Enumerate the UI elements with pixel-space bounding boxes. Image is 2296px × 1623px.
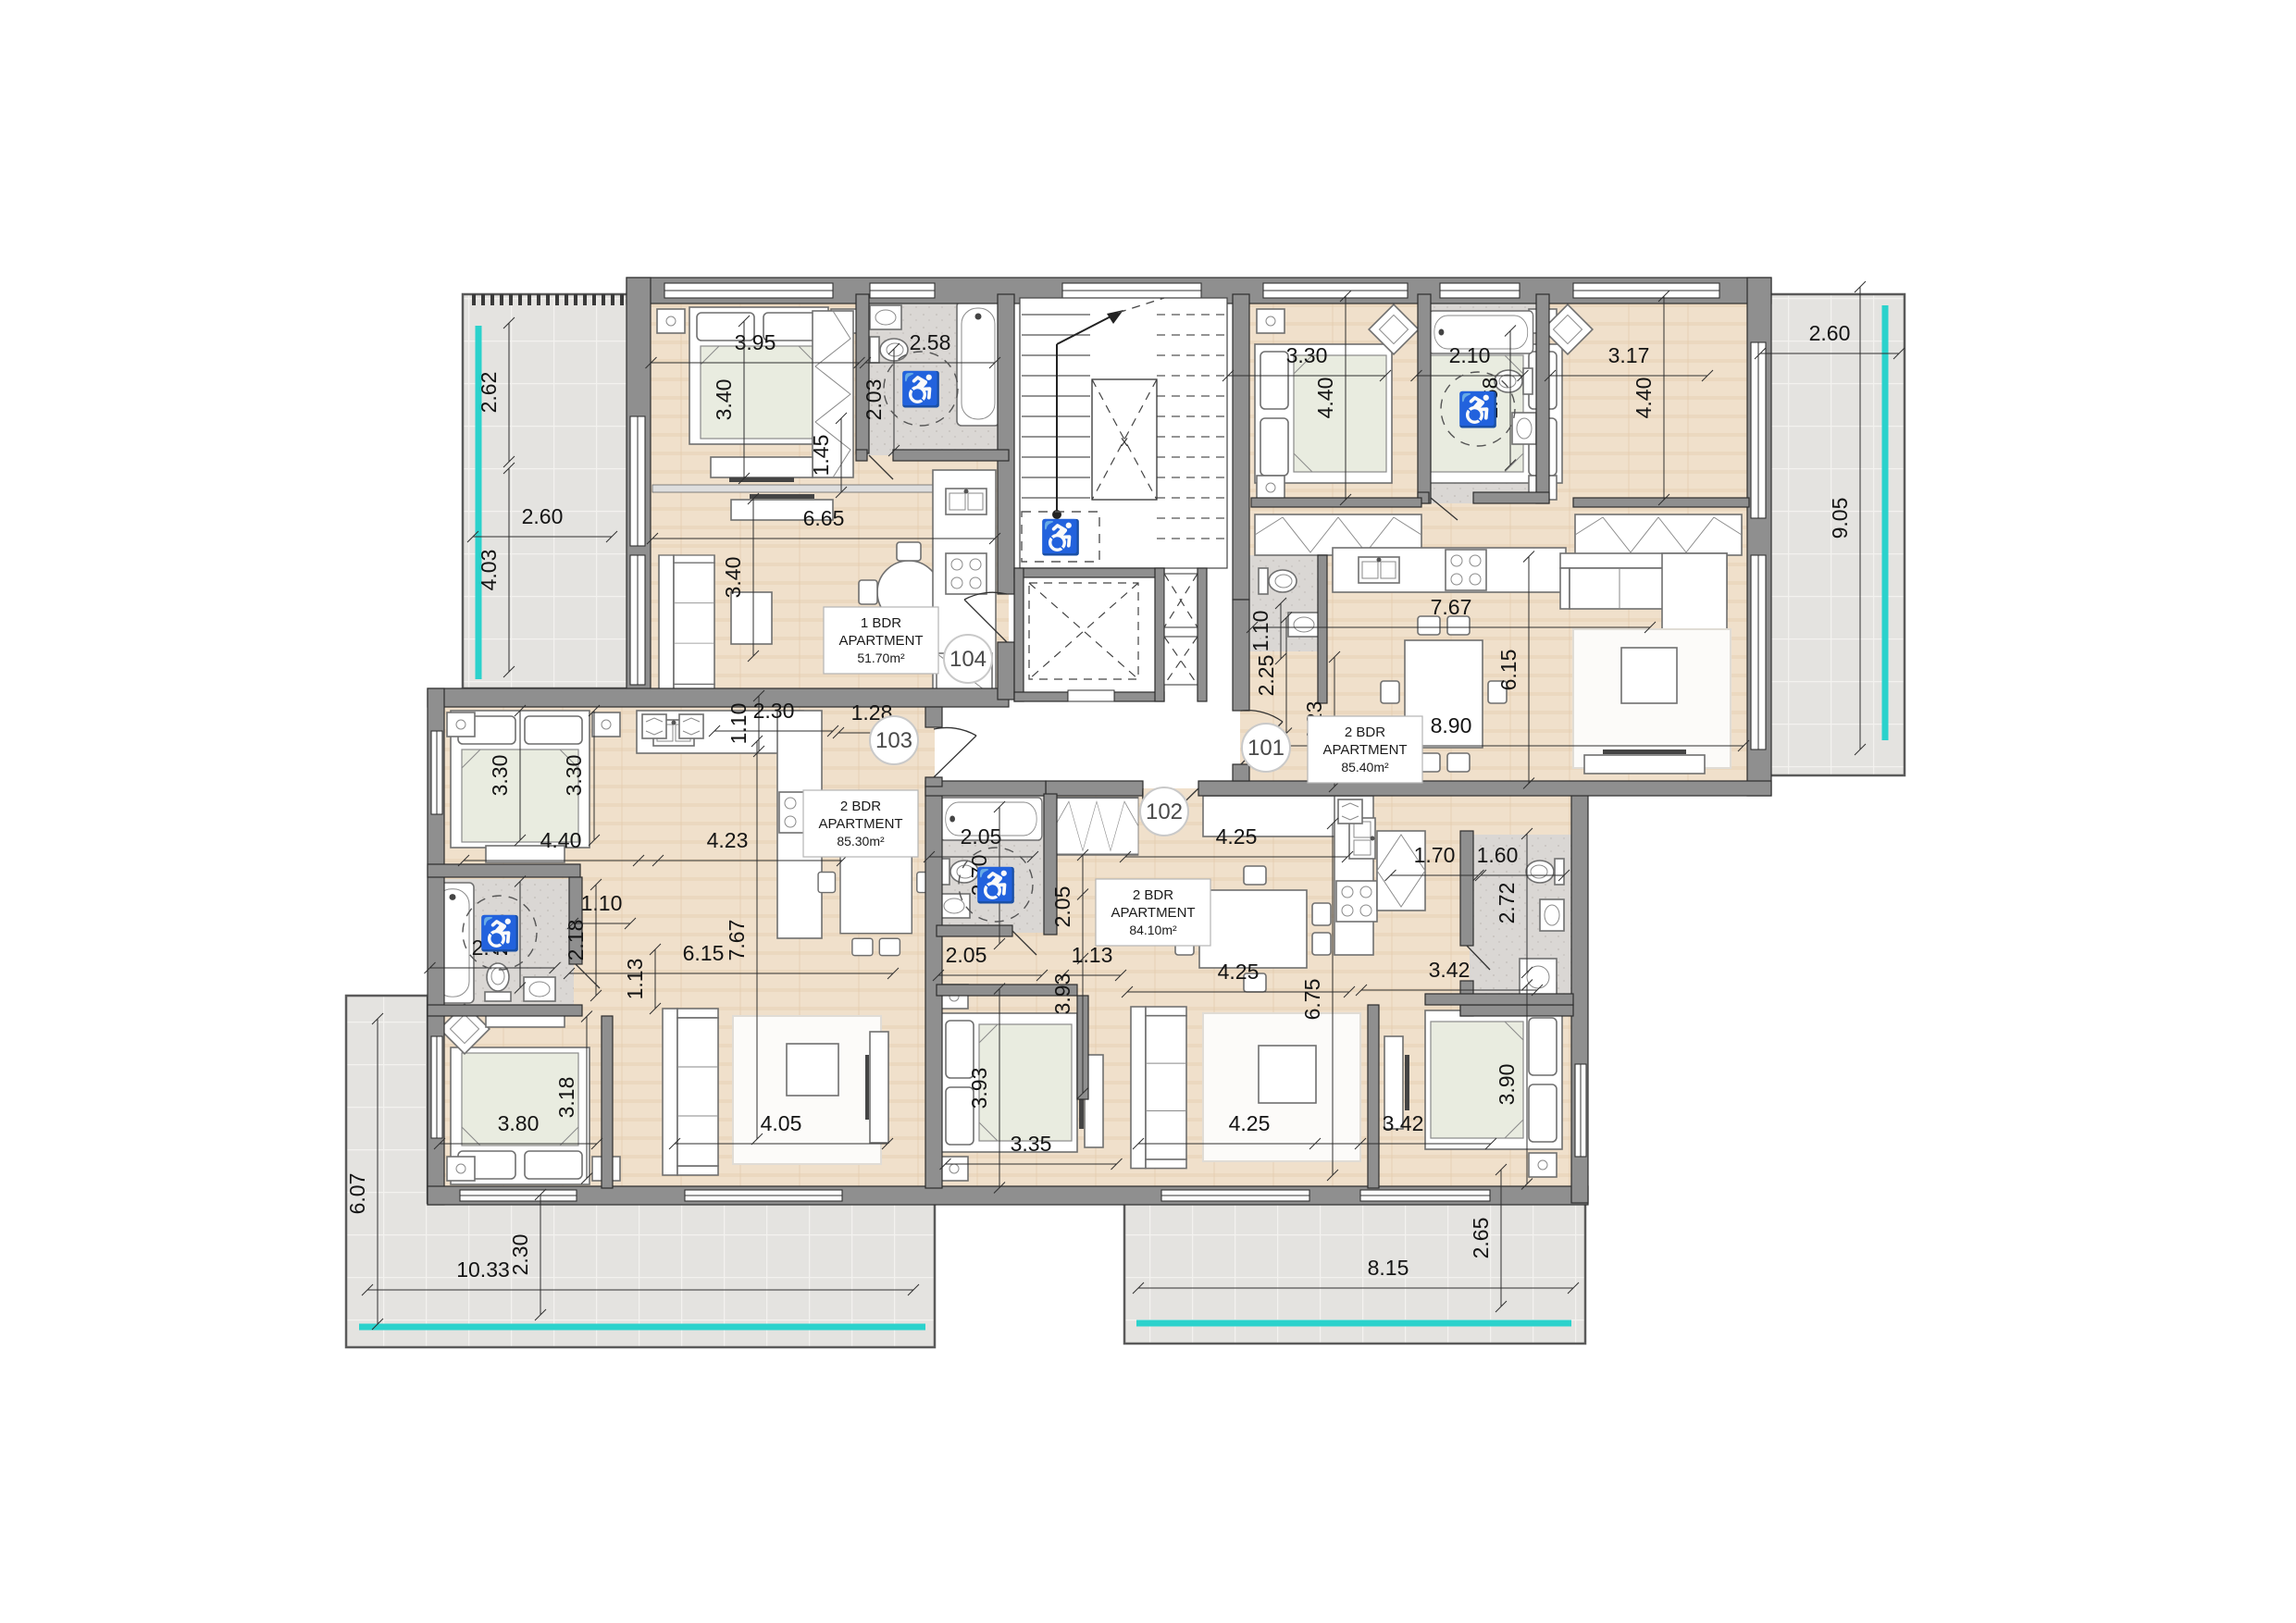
dimension-text: 4.25	[1216, 824, 1258, 849]
window	[1573, 283, 1719, 298]
dimension-text: 2.30	[508, 1234, 532, 1276]
dimension-text: 3.18	[554, 1077, 578, 1119]
dimension-text: 2.03	[862, 379, 886, 421]
stove	[946, 553, 987, 594]
nightstand	[447, 712, 475, 737]
coffee-table	[1259, 1046, 1316, 1103]
apartment-bedrooms: 2 BDR	[840, 799, 881, 814]
apartment-bedrooms: 2 BDR	[1345, 725, 1385, 740]
tv-bench	[870, 1032, 888, 1143]
dimension-text: 4.40	[1632, 378, 1656, 419]
chair	[897, 542, 921, 561]
apartment-label: APARTMENT	[838, 633, 923, 649]
dimension-text: 2.10	[1449, 343, 1491, 367]
floorplan-drawing: x 3.953.402.58	[0, 0, 2296, 1623]
tv-bench	[1584, 755, 1705, 774]
dimension-text: 6.75	[1300, 979, 1324, 1021]
wheelchair-icon: ♿	[900, 370, 942, 408]
washbasin	[1288, 613, 1320, 637]
dimension-text: 3.90	[1495, 1064, 1519, 1106]
ottoman	[731, 592, 772, 644]
bed	[1425, 1010, 1562, 1149]
dimension-text: 1.45	[809, 435, 833, 477]
floorplan-page: x 3.953.402.58	[0, 0, 2296, 1623]
coffee-table	[1621, 648, 1677, 703]
dimension-text: 2.18	[564, 920, 588, 961]
window	[1360, 1190, 1490, 1201]
dimension-text: 1.70	[1414, 843, 1456, 867]
dimension-text: 6.07	[345, 1173, 369, 1215]
dimension-text: 4.40	[1313, 378, 1337, 419]
nightstand	[940, 1157, 968, 1181]
tv	[729, 477, 794, 482]
washbasin	[938, 894, 970, 918]
window	[431, 1036, 442, 1138]
dimension-text: 3.80	[498, 1111, 540, 1135]
toilet	[870, 337, 908, 363]
vent-box	[1338, 799, 1362, 824]
dimension-text: 6.15	[683, 941, 725, 965]
dimension-text: 10.33	[456, 1258, 510, 1282]
washbasin	[1540, 899, 1564, 931]
nightstand	[447, 1157, 475, 1181]
apartment-bedrooms: 2 BDR	[1133, 887, 1173, 903]
wheelchair-icon: ♿	[1040, 518, 1082, 556]
dimension-text: 8.15	[1368, 1256, 1409, 1280]
dimension-text: 2.05	[946, 943, 987, 967]
sofa	[659, 555, 714, 692]
dimension-text: 4.25	[1218, 960, 1260, 984]
terrace-door	[630, 416, 645, 546]
dimension-text: 3.35	[1011, 1132, 1052, 1156]
dimension-text: 3.42	[1429, 958, 1471, 982]
dimension-text: 3.30	[488, 755, 512, 797]
window	[1575, 1064, 1586, 1157]
dimension-text: 2.60	[1809, 321, 1851, 345]
window	[1062, 283, 1201, 298]
dimension-text: 1.13	[1072, 943, 1113, 967]
wheelchair-icon: ♿	[1458, 390, 1499, 428]
washbasin	[524, 977, 555, 1001]
dimension-text: 2.05	[961, 824, 1002, 849]
wheelchair-icon: ♿	[975, 866, 1017, 904]
dimension-text: 3.30	[1286, 343, 1328, 367]
bed	[689, 307, 828, 444]
entry-closet	[1055, 798, 1138, 855]
wheelchair-icon: ♿	[479, 914, 521, 952]
window	[460, 1190, 577, 1201]
dimension-text: 4.40	[540, 828, 582, 852]
dimension-text: 3.93	[967, 1068, 991, 1109]
terrace-fence-hatch	[466, 294, 639, 305]
unit-number: 102	[1146, 799, 1183, 824]
dimension-text: 8.90	[1431, 713, 1472, 737]
unit-number: 104	[949, 647, 987, 672]
wardrobe	[1575, 514, 1742, 555]
kitchen-sink	[946, 489, 987, 514]
dimension-text: 9.05	[1828, 498, 1852, 539]
nightstand	[1257, 476, 1285, 500]
tv	[865, 1055, 869, 1120]
window	[870, 283, 935, 298]
vent-box	[679, 714, 703, 738]
tv-bench	[711, 457, 813, 477]
dimension-text: 2.72	[1495, 883, 1519, 924]
washbasin	[870, 305, 901, 329]
sliding-door	[1161, 1190, 1309, 1201]
dimension-text: 1.10	[1248, 611, 1272, 652]
apartment-area: 85.30m²	[837, 834, 885, 849]
dimension-text: 3.30	[562, 755, 586, 797]
dimension-text: 3.93	[1050, 973, 1074, 1015]
dimension-text: 1.60	[1477, 843, 1519, 867]
dimension-text: 3.40	[721, 557, 745, 599]
dimension-text: 1.13	[623, 959, 647, 1000]
coffee-table	[787, 1044, 838, 1096]
elevator-door	[1068, 690, 1114, 701]
kitchen-sink	[1359, 557, 1399, 583]
nightstand	[1257, 309, 1285, 333]
tv	[1603, 750, 1686, 754]
washbasin	[1512, 413, 1536, 444]
unit-number: 101	[1247, 736, 1285, 761]
window	[664, 283, 833, 298]
dimension-text: 7.67	[725, 920, 749, 961]
unit-number: 103	[875, 728, 912, 753]
nightstand	[592, 712, 620, 737]
apartment-bedrooms: 1 BDR	[861, 615, 901, 631]
window	[630, 555, 645, 685]
dimension-text: 3.40	[712, 379, 736, 421]
apartment-area: 85.40m²	[1341, 760, 1389, 774]
dimension-text: 3.95	[735, 330, 776, 354]
dimension-text: 4.23	[707, 828, 749, 852]
dimension-text: 4.03	[477, 550, 501, 591]
dimension-text: 6.65	[803, 506, 845, 530]
floor-corridor	[935, 707, 1240, 781]
apartment-area: 84.10m²	[1129, 923, 1177, 937]
dimension-text: 2.65	[1469, 1218, 1493, 1259]
window	[431, 731, 442, 814]
nightstand	[1529, 1153, 1557, 1177]
dimension-text: 2.05	[1050, 886, 1074, 928]
dimension-text: 2.60	[522, 504, 564, 528]
dimension-text: 2.25	[1254, 655, 1278, 697]
window	[1263, 283, 1408, 298]
sofa	[663, 1009, 718, 1175]
dimension-text: 2.30	[753, 699, 795, 723]
window	[1440, 283, 1520, 298]
terrace-top-left	[463, 294, 639, 688]
dimension-text: 2.62	[477, 372, 501, 414]
stove	[1446, 550, 1486, 590]
tv	[750, 494, 814, 499]
bed	[940, 1013, 1077, 1152]
dimension-text: 6.15	[1496, 650, 1520, 691]
vent-box	[642, 714, 666, 738]
dimension-text: 7.67	[1431, 595, 1472, 619]
stair-void-mark: x	[1121, 434, 1128, 450]
apartment-label: APARTMENT	[818, 816, 902, 832]
bathtub	[957, 302, 999, 426]
dimension-text: 3.42	[1383, 1111, 1424, 1135]
dimension-text: 1.10	[726, 703, 751, 745]
dimension-text: 4.25	[1229, 1111, 1271, 1135]
dimension-text: 3.17	[1608, 343, 1650, 367]
stove	[1336, 881, 1377, 922]
chair	[859, 580, 877, 604]
toilet	[1259, 568, 1297, 594]
dimension-text: 2.58	[910, 330, 951, 354]
sliding-door	[1751, 555, 1766, 750]
tv	[1405, 1055, 1409, 1110]
dimension-text: 4.05	[761, 1111, 802, 1135]
dimension-text: 1.10	[581, 891, 623, 915]
window	[1751, 342, 1766, 518]
apartment-label: APARTMENT	[1111, 905, 1195, 921]
apartment-label: APARTMENT	[1322, 742, 1407, 758]
nightstand	[657, 309, 685, 333]
apartment-area: 51.70m²	[857, 650, 905, 665]
sliding-door	[685, 1190, 842, 1201]
